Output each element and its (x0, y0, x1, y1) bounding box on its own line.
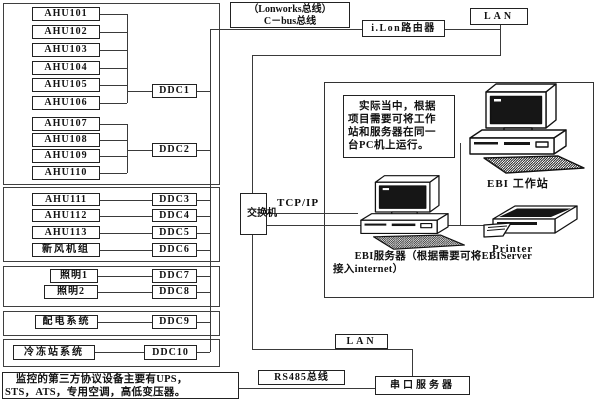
line-chiller-ddc10 (95, 352, 144, 353)
line-lighting2-ddc8 (98, 292, 152, 293)
node-ahu112: AHU112 (32, 209, 100, 222)
line-to-ddc2 (127, 150, 152, 151)
server-graphic (350, 174, 468, 250)
node-ddc1: DDC1 (152, 84, 197, 98)
node-lighting1: 照明1 (50, 269, 98, 283)
line-to-ddc1 (127, 91, 152, 92)
line-ddc5-bus (197, 233, 210, 234)
node-ahu109: AHU109 (32, 149, 100, 163)
line-ahu111-ddc3 (100, 200, 152, 201)
line-ddc9-bus (197, 322, 210, 323)
server-label: EBI服务器（根据需要可将EBIServer 接入internet） (333, 251, 589, 276)
node-fresh-air-unit: 新风机组 (32, 243, 100, 257)
node-ddc9: DDC9 (152, 315, 197, 329)
line-ahu106 (100, 103, 127, 104)
line-freshair-ddc6 (100, 250, 152, 251)
node-ahu110: AHU110 (32, 166, 100, 180)
node-serial-server: 串口服务器 (375, 376, 470, 395)
node-ddc4: DDC4 (152, 209, 197, 222)
bas-network-diagram: AHU101 AHU102 AHU103 AHU104 AHU105 AHU10… (0, 0, 600, 400)
node-ahu108: AHU108 (32, 133, 100, 147)
line-ahu101 (100, 14, 127, 15)
node-rs485-bus: RS485总线 (258, 370, 345, 385)
line-ahu113-ddc5 (100, 233, 152, 234)
node-ahu103: AHU103 (32, 43, 100, 57)
node-ahu107: AHU107 (32, 117, 100, 131)
line-ddc2-bus (197, 150, 210, 151)
line-ahu103 (100, 50, 127, 51)
switch-label: 交换机 (247, 208, 260, 220)
node-power-dist: 配电系统 (35, 315, 98, 329)
node-lan-bottom: LAN (335, 334, 388, 349)
node-lighting2: 照明2 (44, 285, 98, 299)
node-ddc2: DDC2 (152, 143, 197, 157)
line-ddc1-bus (197, 91, 210, 92)
line-ahu108 (100, 140, 127, 141)
line-switch-server (267, 213, 358, 214)
node-ddc5: DDC5 (152, 226, 197, 239)
line-ahu104 (100, 68, 127, 69)
node-lan-top: LAN (470, 8, 528, 25)
line-ahu112-ddc4 (100, 216, 152, 217)
collector-ddc1 (127, 14, 128, 103)
line-ddc6-bus (197, 250, 210, 251)
printer-graphic (483, 203, 583, 243)
tcpip-label: TCP/IP (277, 197, 319, 210)
node-ddc7: DDC7 (152, 269, 197, 283)
third-party-note: 监控的第三方协议设备主要有UPS， STS，ATS，专用空调，高低变压器。 (2, 372, 239, 399)
node-ahu111: AHU111 (32, 193, 100, 206)
node-ahu101: AHU101 (32, 7, 100, 21)
line-ahu107 (100, 124, 127, 125)
ebi-note: 实际当中，根据 项目需要可将工作 站和服务器在同一 台PC机上运行。 (343, 95, 455, 158)
line-lighting1-ddc7 (98, 276, 152, 277)
node-ahu106: AHU106 (32, 96, 100, 110)
node-ddc6: DDC6 (152, 243, 197, 257)
workstation-label: EBI 工作站 (487, 178, 549, 191)
line-ddc8-bus (197, 292, 210, 293)
line-ahu110 (100, 173, 127, 174)
line-ahu109 (100, 156, 127, 157)
line-bottom-lan (252, 349, 412, 350)
line-ddc7-bus (197, 276, 210, 277)
line-ddc4-bus (197, 216, 210, 217)
node-switch: 交换机 (240, 193, 267, 235)
node-ahu102: AHU102 (32, 25, 100, 39)
line-ilon-to-lan (445, 29, 500, 30)
node-ilon-router: i.Lon路由器 (362, 20, 445, 37)
line-lan-to-switch-top (252, 55, 501, 56)
collector-ddc2 (127, 124, 128, 173)
line-rs485 (239, 388, 375, 389)
node-ahu105: AHU105 (32, 78, 100, 92)
line-ahu105 (100, 85, 127, 86)
node-ahu104: AHU104 (32, 61, 100, 75)
line-ahu102 (100, 32, 127, 33)
line-bus-to-ilon (210, 29, 362, 30)
node-ahu113: AHU113 (32, 226, 100, 239)
line-ddc3-bus (197, 200, 210, 201)
workstation-graphic (458, 82, 588, 174)
node-chiller-station: 冷冻站系统 (13, 345, 95, 360)
node-ddc3: DDC3 (152, 193, 197, 206)
line-lan-drop (500, 25, 501, 56)
cbus-vertical-bus (210, 29, 211, 352)
line-lan-serialserver (412, 349, 413, 377)
node-ddc8: DDC8 (152, 285, 197, 299)
node-ddc10: DDC10 (144, 345, 197, 360)
lonworks-bus-label: （Lonworks总线） C－bus总线 (230, 2, 350, 28)
line-powerdist-ddc9 (98, 322, 152, 323)
line-ddc10-bus (197, 352, 210, 353)
